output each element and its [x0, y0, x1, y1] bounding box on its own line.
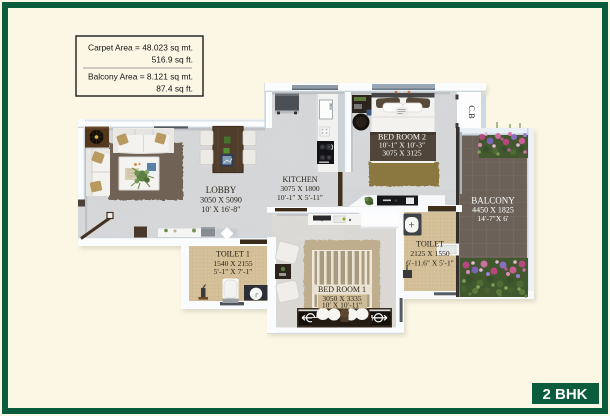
svg-text:3075 X 3125: 3075 X 3125: [382, 149, 421, 158]
svg-text:C.B: C.B: [467, 105, 477, 119]
svg-text:516.9 sq ft.: 516.9 sq ft.: [152, 55, 193, 65]
svg-text:10′ X 10′-11″: 10′ X 10′-11″: [322, 301, 362, 310]
svg-text:TOILET: TOILET: [416, 240, 444, 249]
svg-text:14′-7″X 6′: 14′-7″X 6′: [477, 214, 509, 223]
svg-text:KITCHEN: KITCHEN: [282, 175, 317, 184]
svg-text:2125 X 1550: 2125 X 1550: [410, 249, 449, 258]
svg-text:Balcony Area = 8.121 sq mt.: Balcony Area = 8.121 sq mt.: [88, 72, 193, 82]
svg-text:5′-1″ X 7′-1″: 5′-1″ X 7′-1″: [214, 267, 253, 276]
svg-text:3050 X 5090: 3050 X 5090: [200, 196, 242, 205]
svg-text:2 BHK: 2 BHK: [542, 386, 587, 403]
svg-text:3075 X 1800: 3075 X 1800: [280, 184, 319, 193]
svg-text:LOBBY: LOBBY: [206, 185, 237, 195]
svg-text:10′ X 16′-8″: 10′ X 16′-8″: [201, 205, 240, 214]
svg-text:Carpet Area = 48.023 sq mt.: Carpet Area = 48.023 sq mt.: [88, 43, 193, 53]
svg-text:10′-1″ X 5′-11″: 10′-1″ X 5′-11″: [277, 193, 323, 202]
svg-text:6′-11.6″ X 5′-1″: 6′-11.6″ X 5′-1″: [406, 259, 454, 268]
svg-text:BALCONY: BALCONY: [471, 195, 515, 205]
svg-text:BED ROOM 1: BED ROOM 1: [318, 285, 366, 294]
svg-text:TOILET 1: TOILET 1: [216, 250, 250, 259]
svg-text:87.4 sq ft.: 87.4 sq ft.: [156, 84, 193, 94]
